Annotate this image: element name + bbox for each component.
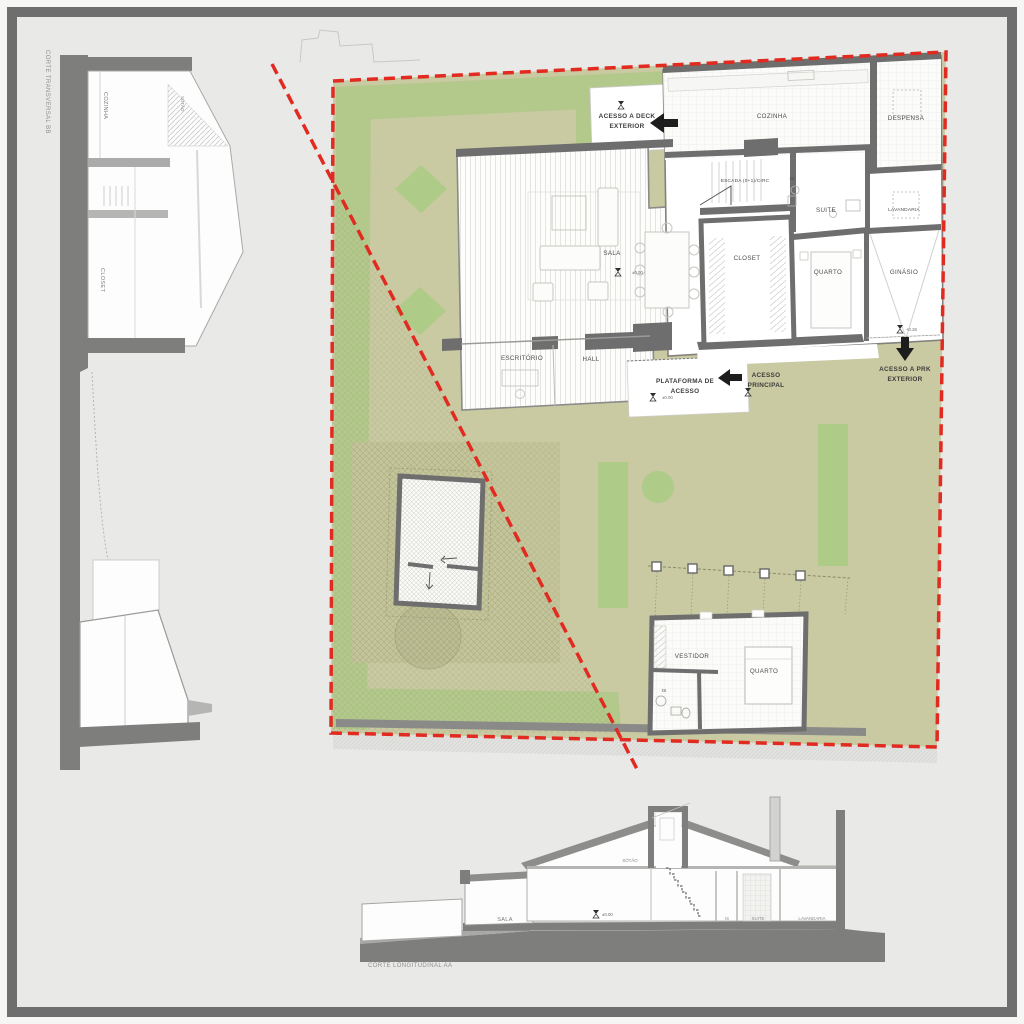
label-plataforma-2: ACESSO: [671, 388, 700, 395]
label-suite: SUITE: [816, 207, 836, 214]
label-escritorio: ESCRITÓRIO: [501, 355, 543, 362]
bed: [745, 647, 792, 704]
label-ginasio: GINÁSIO: [890, 269, 918, 276]
label-lavandaria: LAVANDARIA: [888, 207, 920, 213]
label-acesso-deck-1: ACESSO A DECK: [599, 113, 656, 120]
section-transversal-title: CORTE TRANSVERSAL BB: [44, 50, 50, 134]
bed-quarto: [811, 252, 851, 328]
label-cozinha: COZINHA: [757, 113, 788, 120]
label-hall: HALL: [583, 356, 600, 363]
despensa-floor: [874, 56, 941, 172]
label-escada: ESCADA (0+1)/CIRC: [721, 178, 770, 184]
label-acesso-principal-1: ACESSO: [752, 372, 781, 379]
drawing-canvas: COZINHA DESPENSA ESCADA (0+1)/CIRC IS SU…: [0, 0, 1024, 1024]
annex-building: [650, 610, 806, 733]
section-longitudinal-title: CORTE LONGITUDINAL AA: [368, 963, 452, 969]
seclong-level: ±0.00: [602, 912, 613, 917]
seclong-label-is: IS: [725, 916, 729, 921]
label-sala: SALA: [603, 250, 621, 257]
wardrobe-right: [770, 236, 786, 332]
section-label-sotao: SÓTÃO: [180, 96, 185, 112]
section-label-closet: CLOSET: [99, 268, 105, 292]
label-quarto-anexo: QUARTO: [750, 668, 778, 675]
label-quarto: QUARTO: [814, 269, 842, 276]
level-prk: +0.26: [906, 327, 917, 332]
architectural-drawing-sheet: COZINHA DESPENSA ESCADA (0+1)/CIRC IS SU…: [0, 0, 1024, 1024]
label-is-anexo: IS: [662, 688, 667, 694]
label-despensa: DESPENSA: [888, 115, 925, 122]
label-acesso-principal-2: PRINCIPAL: [748, 382, 785, 389]
seclong-label-sala: SALA: [497, 917, 513, 923]
plataforma-area: [627, 356, 749, 417]
seclong-label-sotao: SÓTÃO: [622, 858, 638, 863]
label-vestidor: VESTIDOR: [675, 653, 710, 660]
label-is-suite: IS: [790, 176, 795, 182]
label-acesso-deck-2: EXTERIOR: [609, 123, 644, 130]
label-plataforma-1: PLATAFORMA DE: [656, 378, 715, 385]
section-label-cozinha: COZINHA: [102, 92, 108, 119]
seclong-label-lavandaria: LAVANDARIA: [798, 916, 825, 921]
level-plataforma: ±0.00: [662, 395, 673, 400]
label-acesso-prk-2: EXTERIOR: [887, 376, 922, 383]
pool-house: [386, 468, 492, 620]
level-sala: ±0.00: [632, 270, 643, 275]
label-acesso-prk-1: ACESSO A PRK: [879, 366, 931, 373]
wardrobe-left: [709, 238, 725, 334]
seclong-label-suite: SUITE: [752, 916, 765, 921]
label-closet: CLOSET: [734, 255, 761, 262]
